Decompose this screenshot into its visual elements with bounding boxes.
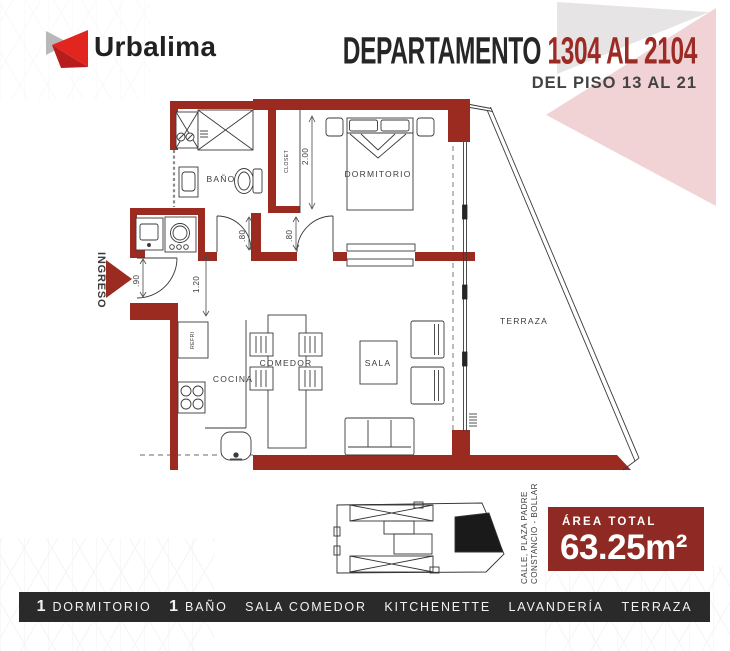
- keyplan: [334, 502, 504, 573]
- feature-label: SALA COMEDOR: [245, 600, 367, 614]
- feature-label: LAVANDERÍA: [509, 600, 604, 614]
- kitchen-fixtures: [178, 322, 251, 460]
- feature-label: DORMITORIO: [52, 600, 151, 614]
- keyplan-unit-highlight: [455, 513, 503, 552]
- brand-logo-icon: [46, 30, 88, 68]
- refri-label: REFRI: [190, 331, 196, 349]
- feature-count: 1: [169, 598, 178, 616]
- dim-closet: 2.00: [301, 148, 310, 165]
- dormitorio-label: DORMITORIO: [344, 169, 411, 179]
- duct-shaft: [176, 110, 253, 150]
- banio-label: BAÑO: [207, 174, 236, 184]
- title-accent: 1304 AL 2104: [548, 30, 697, 73]
- floor-range-subtitle: DEL PISO 13 AL 21: [532, 74, 697, 93]
- window-slat: [347, 259, 413, 266]
- feature-sala-comedor: SALA COMEDOR: [245, 600, 367, 614]
- dim-bath-door: .80: [238, 230, 247, 242]
- area-total-label: ÁREA TOTAL: [562, 516, 704, 528]
- feature-dormitorio: 1 DORMITORIO: [37, 598, 152, 616]
- dim-entry-door: .90: [132, 275, 141, 287]
- feature-terraza: TERRAZA: [621, 600, 692, 614]
- brand-name: Urbalima: [94, 31, 216, 63]
- closet-label: CLOSET: [284, 149, 290, 173]
- feature-count: 1: [37, 598, 46, 616]
- area-total-value: 63.25m²: [560, 530, 704, 565]
- feature-label: BAÑO: [185, 600, 228, 614]
- sala-label: SALA: [365, 358, 392, 368]
- laundry-fixtures: [136, 217, 196, 252]
- ingreso-label: INGRESO: [95, 252, 107, 308]
- feature-label: KITCHENETTE: [384, 600, 491, 614]
- feature-banio: 1 BAÑO: [169, 598, 228, 616]
- dining-set: [250, 315, 322, 448]
- comedor-label: COMEDOR: [260, 358, 313, 368]
- window-slat: [347, 244, 415, 251]
- street-label-line2: CONSTANCIO - BOLLAR: [530, 483, 539, 584]
- bed: [347, 118, 413, 210]
- nightstand: [326, 118, 343, 136]
- living-room-set: [345, 321, 444, 455]
- feature-label: TERRAZA: [621, 600, 692, 614]
- ingreso-arrow-icon: [106, 260, 132, 298]
- dim-bedroom-door: .80: [285, 230, 294, 242]
- features-bar: 1 DORMITORIO 1 BAÑO SALA COMEDOR KITCHEN…: [19, 592, 710, 622]
- terraza-label: TERRAZA: [500, 316, 548, 326]
- page-title: DEPARTAMENTO 1304 AL 2104: [343, 30, 697, 74]
- furniture: [136, 110, 444, 460]
- nightstand: [417, 118, 434, 136]
- area-total-badge: ÁREA TOTAL 63.25m²: [548, 507, 704, 571]
- dim-hall: 1.20: [192, 276, 201, 293]
- glass-mullions: [463, 205, 478, 426]
- feature-lavanderia: LAVANDERÍA: [509, 600, 604, 614]
- cocina-label: COCINA: [213, 374, 253, 384]
- street-label-line1: CALLE, PLAZA PADRE: [520, 491, 529, 584]
- feature-kitchenette: KITCHENETTE: [384, 600, 491, 614]
- title-main: DEPARTAMENTO: [343, 30, 541, 73]
